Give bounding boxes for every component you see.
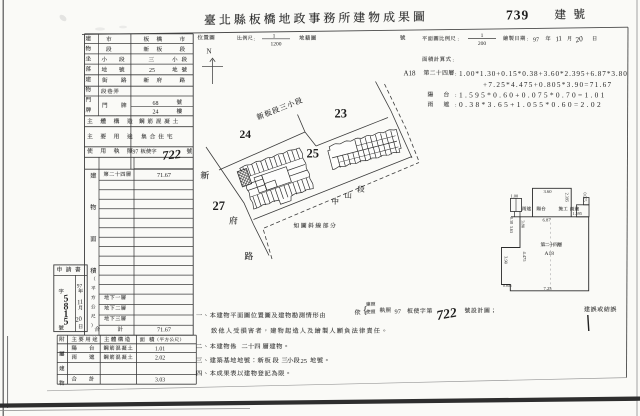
svg-text::: : [527, 38, 528, 43]
svg-text:1.595*0.60+0.075*0.70=1.01: 1.595*0.60+0.075*0.70=1.01 [459, 90, 607, 99]
svg-text:7.25: 7.25 [544, 286, 553, 291]
svg-text:0.805: 0.805 [503, 284, 512, 288]
svg-text:200: 200 [478, 41, 487, 47]
svg-text:1: 1 [481, 33, 484, 39]
svg-text:1: 1 [273, 33, 276, 39]
svg-text:0.38: 0.38 [509, 217, 514, 224]
svg-text:3.80: 3.80 [520, 220, 525, 228]
svg-text:24: 24 [240, 129, 252, 141]
svg-text:97: 97 [395, 309, 402, 316]
svg-text:71.67: 71.67 [157, 327, 171, 334]
svg-text:+7.25*4.475+0.805*3.90=71.67: +7.25*4.475+0.805*3.90=71.67 [483, 81, 612, 89]
svg-text:25: 25 [301, 358, 308, 365]
svg-text:739: 739 [506, 8, 529, 23]
svg-text:A18: A18 [404, 70, 417, 78]
svg-text:0.075: 0.075 [582, 193, 587, 202]
svg-text::: : [453, 59, 454, 64]
svg-text:0.38*3.65+1.055*0.60=2.02: 0.38*3.65+1.055*0.60=2.02 [459, 100, 603, 109]
svg-text:11: 11 [77, 299, 84, 307]
svg-text:24: 24 [153, 110, 159, 116]
svg-text::: : [458, 38, 459, 43]
svg-text:11: 11 [555, 34, 563, 43]
svg-text:20: 20 [75, 315, 84, 324]
svg-text:1.00: 1.00 [511, 194, 519, 199]
svg-text:1200: 1200 [271, 41, 282, 47]
svg-text:25: 25 [149, 68, 155, 74]
svg-text:3.65: 3.65 [509, 226, 514, 233]
svg-text:3.60: 3.60 [544, 189, 553, 194]
svg-text:2.02: 2.02 [155, 355, 165, 361]
svg-text:6.87: 6.87 [543, 217, 552, 222]
svg-text:23: 23 [335, 107, 348, 121]
svg-text:722: 722 [435, 305, 458, 323]
svg-text:1.01: 1.01 [155, 346, 165, 352]
svg-text:3.03: 3.03 [155, 377, 165, 383]
svg-text:722: 722 [162, 147, 182, 163]
svg-text:3.90: 3.90 [504, 256, 509, 264]
svg-text:68: 68 [153, 101, 159, 107]
svg-text::: : [254, 38, 255, 43]
svg-text:2.395: 2.395 [564, 193, 569, 202]
svg-text:27: 27 [213, 199, 226, 213]
svg-text:97: 97 [533, 38, 539, 44]
svg-text::: : [455, 71, 457, 77]
svg-text:25: 25 [307, 147, 320, 161]
svg-text:71.67: 71.67 [157, 172, 171, 179]
svg-text:{: { [363, 304, 368, 316]
svg-text:1.00*1.30+0.15*0.38+3.60*2.395: 1.00*1.30+0.15*0.38+3.60*2.395+6.87*3.80 [459, 70, 628, 78]
svg-text::: : [455, 103, 457, 109]
svg-text:A18: A18 [545, 251, 555, 257]
svg-text:97: 97 [133, 150, 139, 156]
svg-text:N: N [206, 48, 211, 56]
svg-text:1.595: 1.595 [573, 211, 582, 216]
svg-text:4.475: 4.475 [522, 252, 527, 263]
svg-text::: : [455, 93, 457, 99]
svg-text:20: 20 [574, 34, 584, 45]
